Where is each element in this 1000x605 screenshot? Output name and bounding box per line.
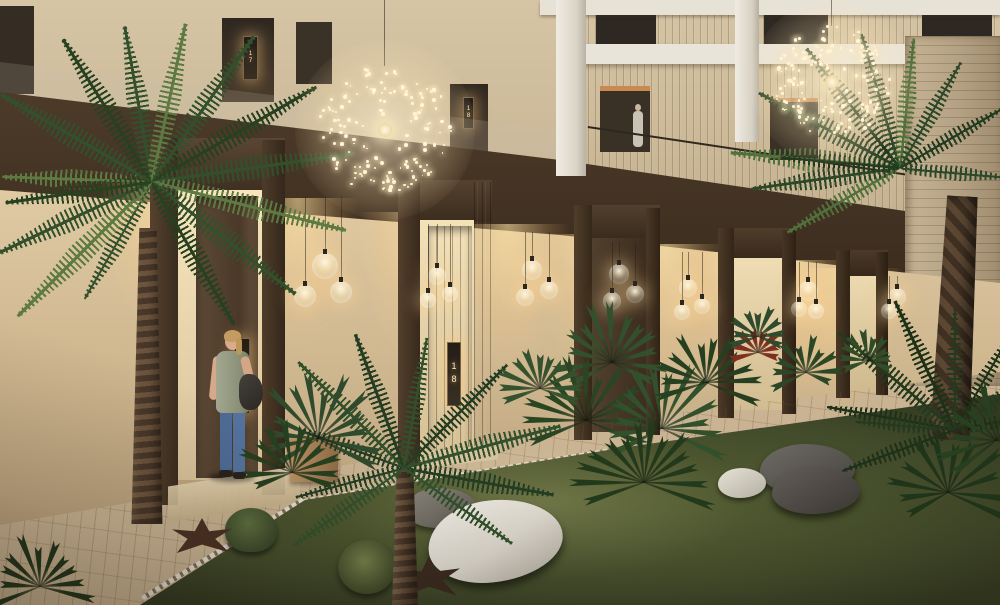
dandelion-chandelier-right [750, 0, 914, 164]
pendant-globe [540, 281, 558, 299]
chandelier-light-dot [777, 66, 781, 70]
chandelier-light-dot [861, 103, 864, 106]
chandelier-light-dot [440, 120, 444, 124]
pendant-globe [881, 303, 897, 319]
pendant-cord [549, 232, 550, 281]
pendant-globe [694, 298, 710, 314]
chandelier-light-dot [404, 93, 408, 97]
chandelier-light-dot [805, 118, 808, 121]
chandelier-light-dot [831, 110, 834, 113]
pendant-globe [516, 288, 534, 306]
chandelier-light-dot [787, 62, 790, 65]
dandelion-chandelier-left [295, 40, 475, 220]
chandelier-light-dot [420, 103, 424, 107]
chandelier-light-dot [383, 187, 385, 189]
chandelier-light-dot [867, 123, 870, 126]
chandelier-light-dot [824, 106, 826, 108]
chandelier-light-dot [411, 102, 414, 105]
chandelier-light-dot [363, 170, 367, 174]
chandelier-light-dot [792, 47, 795, 50]
chandelier-light-dot [793, 77, 796, 80]
chandelier-light-dot [802, 51, 805, 54]
chandelier-light-dot [398, 189, 400, 191]
chandelier-light-dot [359, 166, 361, 168]
chandelier-light-dot [861, 118, 865, 122]
courtyard-render: 17 18 17 18 [0, 0, 1000, 605]
chandelier-light-dot [426, 164, 428, 166]
green-cactus-ball [225, 508, 277, 552]
pendant-globe [626, 285, 644, 303]
chandelier-light-dot [410, 120, 412, 122]
pendant-globe [294, 285, 316, 307]
chandelier-light-dot [416, 83, 418, 85]
pendant-globe [808, 303, 824, 319]
alcove-3-pilaster-left [574, 205, 592, 440]
chandelier-light-dot [398, 147, 401, 150]
chandelier-light-dot [322, 109, 324, 111]
alcove-5-pilaster-left [836, 250, 850, 398]
chandelier-light-dot [347, 118, 351, 122]
chandelier-light-dot [875, 106, 877, 108]
chandelier-light-dot [800, 122, 802, 124]
door-18-number-plate: 18 [447, 342, 461, 406]
chandelier-light-dot [404, 143, 408, 147]
chandelier-light-dot [345, 94, 347, 96]
chandelier-light-dot [800, 107, 803, 110]
chandelier-light-dot [793, 67, 795, 69]
chandelier-light-dot [372, 88, 376, 92]
chandelier-light-dot [366, 164, 370, 168]
chandelier-light-dot [410, 96, 413, 99]
pendant-globe [798, 281, 818, 301]
pendant-globe [312, 253, 338, 279]
wing-opening-dark-1 [596, 14, 656, 46]
chandelier-light-dot [872, 62, 875, 65]
chandelier-light-dot [803, 98, 805, 100]
chandelier-light-dot [798, 115, 802, 119]
chandelier-light-dot [423, 169, 426, 172]
chandelier-light-dot [366, 86, 368, 88]
chandelier-light-dot [423, 148, 427, 152]
chandelier-light-dot [384, 87, 387, 90]
pendant-cord [799, 262, 800, 301]
chandelier-light-dot [336, 163, 339, 166]
chandelier-light-dot [386, 179, 390, 183]
pendant-globe [791, 301, 807, 317]
chandelier-light-dot [853, 34, 855, 36]
pendant-cord [612, 242, 613, 292]
chandelier-light-dot [793, 51, 795, 53]
chandelier-light-dot [423, 142, 426, 145]
pendant-globe [674, 304, 690, 320]
chandelier-light-dot [393, 90, 396, 93]
chandelier-light-dot [845, 89, 848, 92]
chandelier-light-dot [350, 183, 352, 185]
pendant-cord [450, 224, 451, 286]
chandelier-light-dot [792, 105, 795, 108]
chandelier-light-dot [372, 91, 375, 94]
person-handbag [239, 374, 263, 410]
chandelier-light-dot [340, 142, 343, 145]
chandelier-light-dot [380, 81, 383, 84]
white-column-1 [556, 0, 586, 176]
pendant-globe [330, 281, 352, 303]
chandelier-light-dot [348, 151, 350, 153]
pendant-globe [428, 267, 446, 285]
chandelier-light-dot [831, 44, 834, 47]
pendant-cord [816, 262, 817, 303]
chandelier-light-dot [798, 110, 802, 114]
chandelier-light-dot [333, 142, 336, 145]
pendant-cord [702, 252, 703, 298]
chandelier-light-dot [798, 99, 800, 101]
chandelier-light-dot [414, 116, 418, 120]
person-leg-left [220, 408, 232, 472]
chandelier-core [378, 123, 392, 137]
chandelier-light-dot [415, 179, 417, 181]
spiky-cactus [338, 540, 396, 594]
chandelier-light-dot [840, 47, 842, 49]
chandelier-light-dot [380, 161, 384, 165]
person-shoe-left [219, 470, 232, 477]
chandelier-light-dot [873, 110, 876, 113]
chandelier-light-dot [339, 124, 342, 127]
alcove-4-pilaster-right [782, 230, 796, 414]
chandelier-light-dot [329, 108, 332, 111]
chandelier-light-dot [844, 130, 847, 133]
chandelier-light-dot [865, 105, 869, 109]
chandelier-light-dot [345, 159, 347, 161]
chandelier-light-dot [848, 99, 852, 103]
chandelier-light-dot [376, 158, 378, 160]
chandelier-light-dot [450, 130, 452, 132]
chandelier-light-dot [405, 134, 408, 137]
chandelier-light-dot [340, 105, 343, 108]
chandelier-light-dot [826, 50, 829, 53]
chandelier-light-dot [433, 143, 436, 146]
chandelier-light-dot [785, 67, 787, 69]
pendant-cord [428, 224, 429, 292]
pendant-cord [525, 232, 526, 288]
chandelier-light-dot [836, 126, 840, 130]
chandelier-light-dot [373, 180, 375, 182]
pendant-cord [682, 252, 683, 304]
chandelier-light-dot [821, 37, 825, 41]
alcove-2-pilaster-right [474, 182, 492, 458]
person-leg-right [233, 408, 245, 474]
chandelier-core [825, 75, 839, 89]
chandelier-light-dot [822, 30, 825, 33]
chandelier-light-dot [837, 96, 840, 99]
chandelier-light-dot [810, 64, 813, 67]
chandelier-light-dot [385, 72, 388, 75]
chandelier-light-dot [857, 31, 859, 33]
person-upper-walkway [630, 104, 646, 150]
chandelier-light-dot [429, 122, 431, 124]
chandelier-light-dot [843, 67, 846, 70]
chandelier-light-dot [863, 126, 867, 130]
chandelier-light-dot [381, 112, 385, 116]
chandelier-light-dot [440, 95, 442, 97]
chandelier-light-dot [783, 54, 785, 56]
chandelier-light-dot [792, 82, 796, 86]
person-hair-strand [236, 338, 242, 355]
chandelier-light-dot [888, 78, 891, 81]
chandelier-light-dot [426, 88, 428, 90]
chandelier-light-dot [413, 112, 417, 116]
chandelier-light-dot [830, 102, 834, 106]
chandelier-light-dot [401, 85, 405, 89]
chandelier-light-dot [874, 49, 877, 52]
chandelier-light-dot [797, 105, 799, 107]
chandelier-light-dot [814, 61, 817, 64]
chandelier-light-dot [355, 121, 358, 124]
pendant-globe [420, 292, 436, 308]
chandelier-light-dot [886, 92, 890, 96]
chandelier-light-dot [861, 107, 863, 109]
chandelier-light-dot [421, 97, 423, 99]
chandelier-light-dot [379, 109, 382, 112]
chandelier-light-dot [395, 73, 397, 75]
chandelier-light-dot [388, 171, 391, 174]
chandelier-light-dot [876, 53, 878, 55]
pendant-cord [437, 224, 438, 267]
chandelier-light-dot [370, 179, 372, 181]
chandelier-light-dot [335, 167, 338, 170]
pendant-cord [635, 242, 636, 285]
chandelier-light-dot [810, 55, 812, 57]
pendant-globe [442, 286, 458, 302]
chandelier-light-dot [381, 92, 383, 94]
chandelier-light-dot [797, 84, 799, 86]
chandelier-light-dot [333, 119, 337, 123]
chandelier-light-dot [848, 118, 851, 121]
chandelier-light-dot [826, 66, 829, 69]
